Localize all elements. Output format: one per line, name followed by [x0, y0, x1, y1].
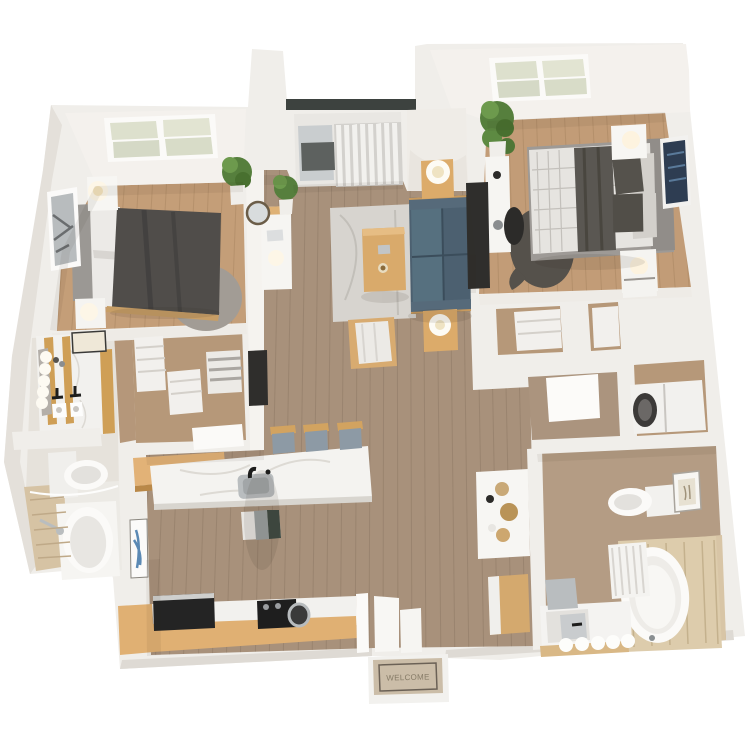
svg-text:WELCOME: WELCOME	[386, 672, 430, 682]
